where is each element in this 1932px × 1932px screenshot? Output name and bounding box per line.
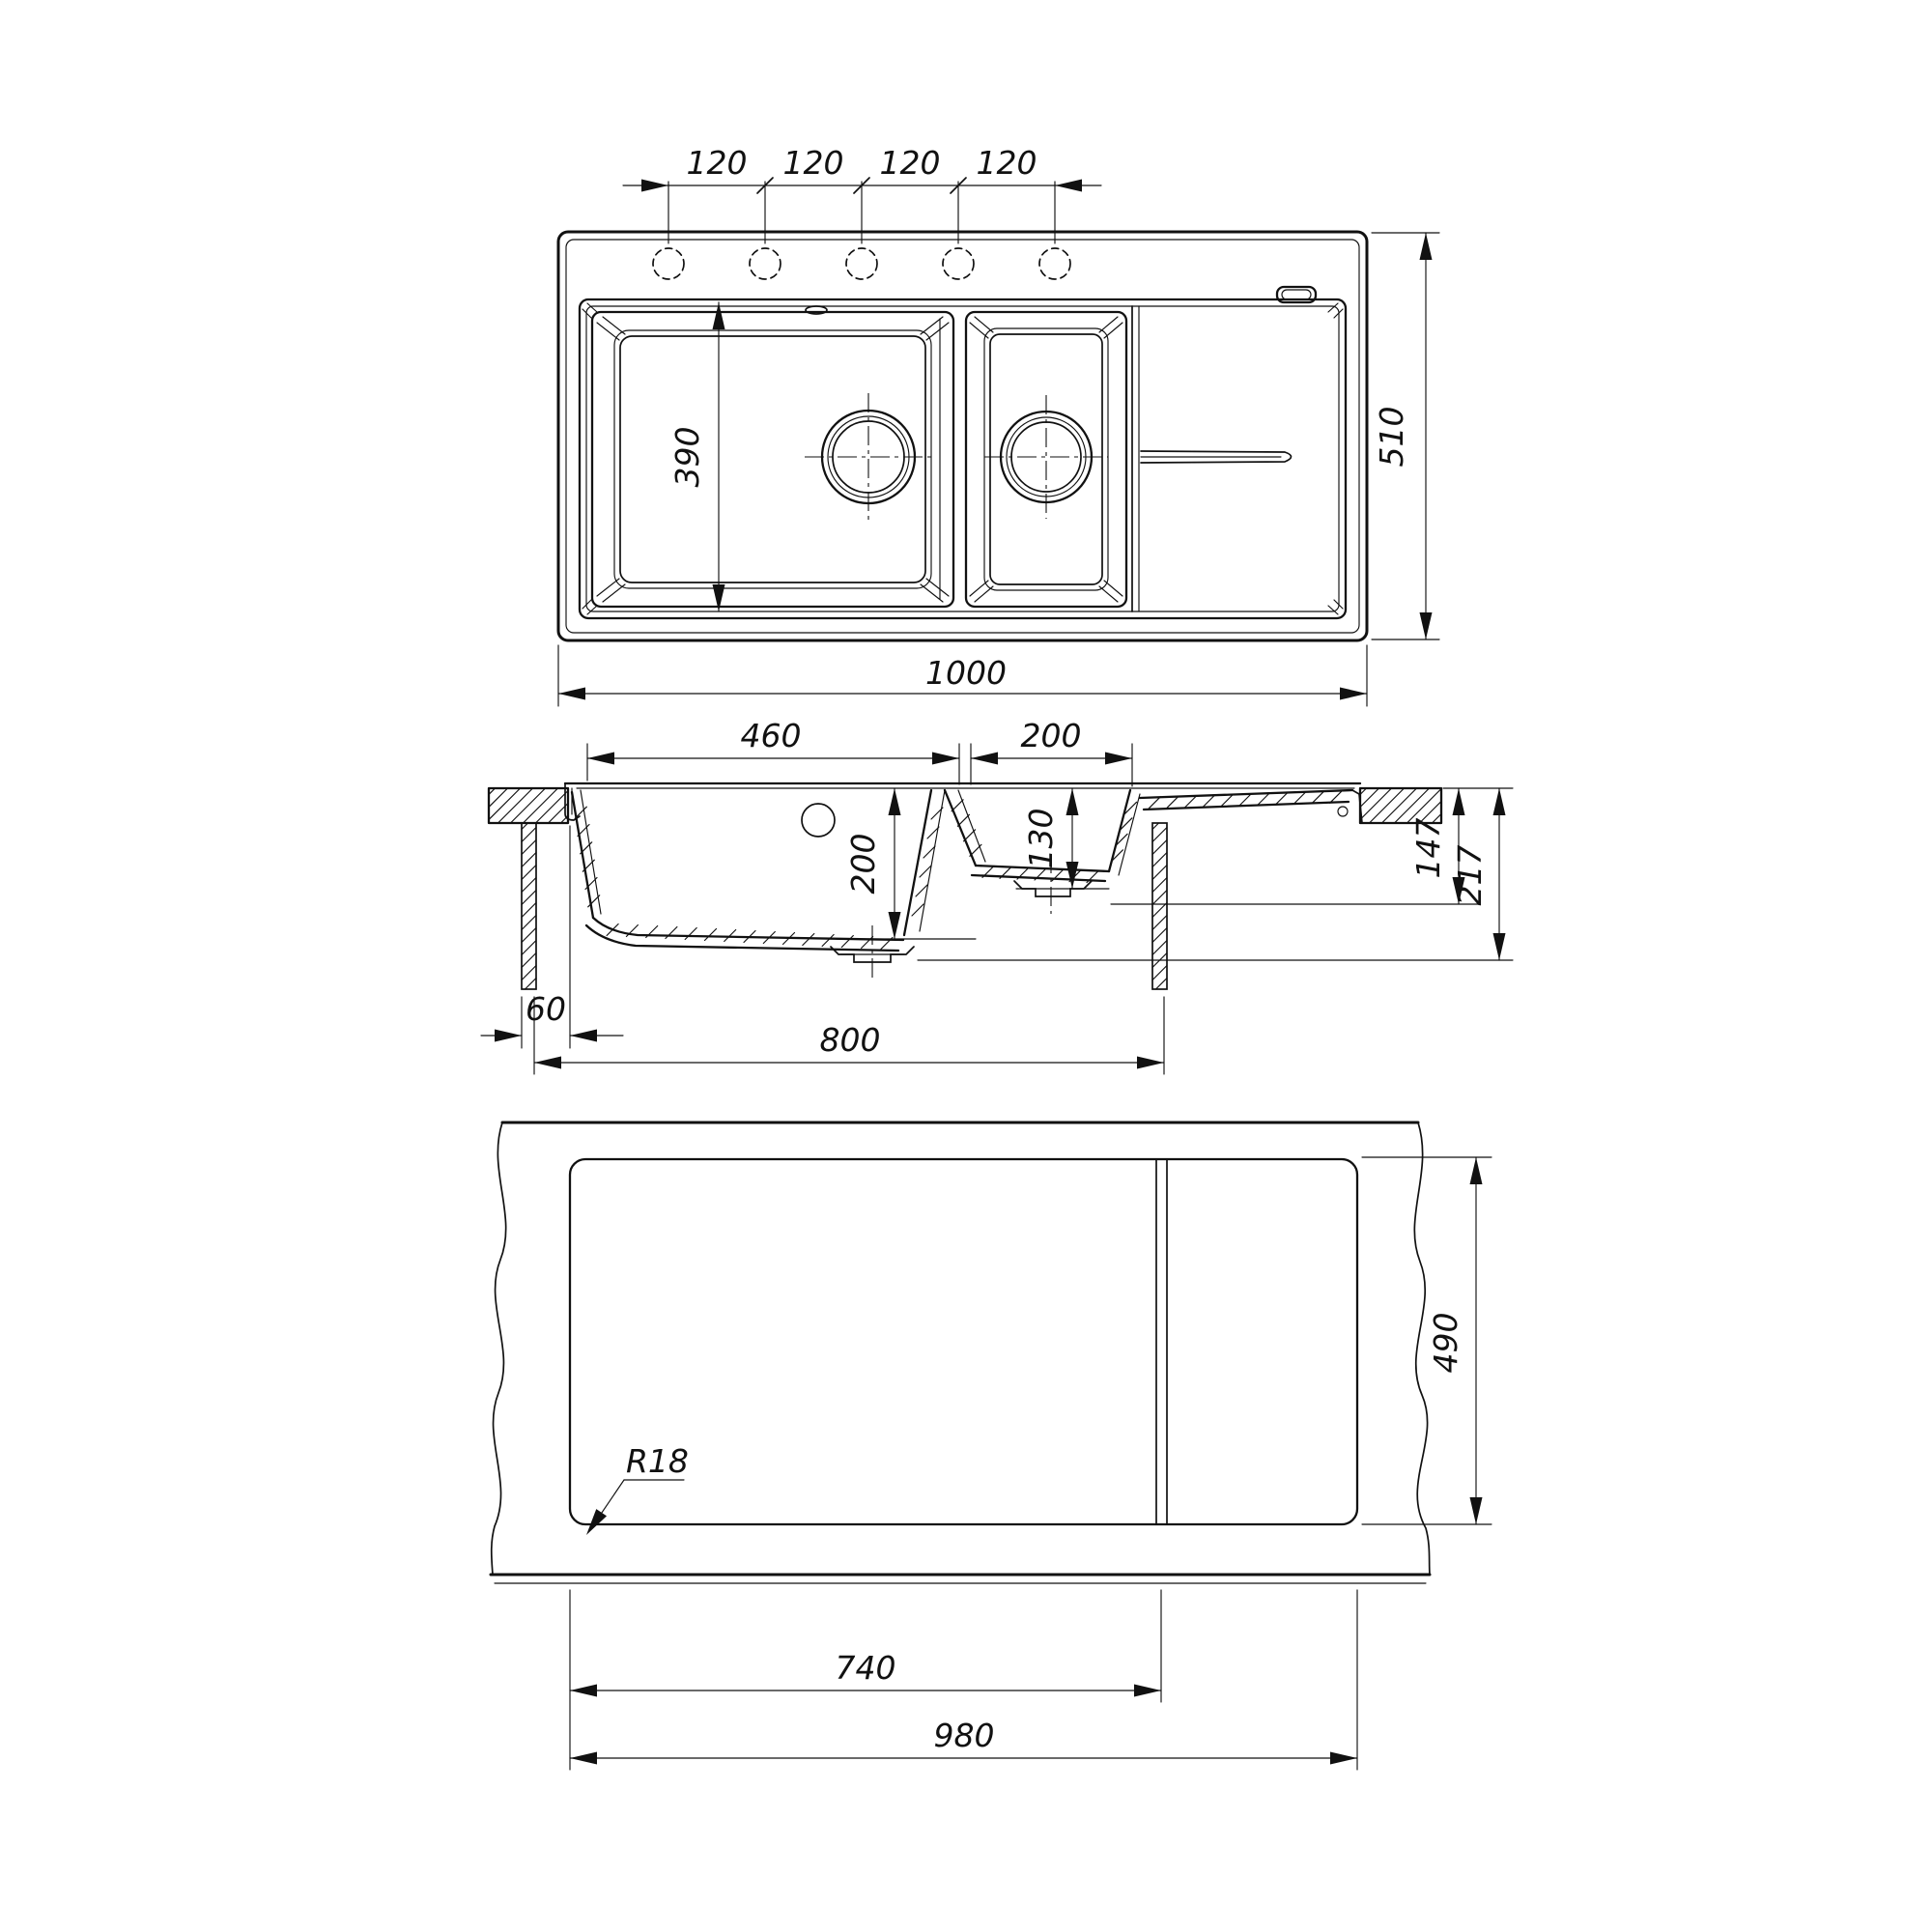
dim-label-cabinet-width: 800 [820,1021,881,1059]
dimension-arrow [932,753,959,765]
hatch-line [522,903,536,918]
hatch-line [522,916,536,930]
divider-wall [904,790,931,935]
small-bowl-corner-bevels [970,317,1122,602]
sink-section-profile [565,783,1362,980]
section-hatch-tick [841,936,853,948]
dimension-arrow [1066,788,1079,815]
small-bowl-right-wall [1109,790,1130,871]
faucet-hole [846,248,877,279]
dim-label-overall-height: 217 [1451,845,1489,906]
faucet-hole [1039,248,1070,279]
dimension-arrow [1105,753,1132,765]
dimension-arrow [1066,862,1079,889]
dimension-arrow [495,1030,522,1042]
small-bowl-right-wall-inner [1119,794,1140,875]
dimension-arrow [558,688,585,700]
dim-label-divider-offset: 740 [836,1649,896,1687]
sink-technical-drawing: 120 120 120 120 1000 510 390 [0,0,1932,1932]
dim-label-front-overhang: 60 [526,990,566,1028]
hatch-line [1152,903,1167,918]
main-bowl-outline [592,312,953,607]
dimension-arrow [534,1057,561,1069]
hatch-line [1152,866,1167,880]
section-hatch-tick [1258,794,1269,806]
main-bowl-left-wall-inner [581,790,601,914]
cutout-depth-dimension: 490 [1362,1157,1492,1524]
faucet-hole [943,248,974,279]
main-drain-outer [822,411,915,503]
dim-label-cutout-width: 980 [934,1717,995,1754]
main-drain [805,393,932,521]
dim-label-cutout-depth: 490 [1427,1313,1464,1374]
main-bowl [592,312,953,607]
overflow-hole-section [802,804,835,837]
dim-label-overall-width: 1000 [925,654,1007,692]
section-hatch-tick [964,830,976,841]
dimension-arrow [889,912,901,939]
section-hatch-tick [1239,794,1251,806]
dimension-arrow [1470,1157,1483,1184]
dim-label-small-bowl-width: 200 [1021,717,1082,754]
hatch-line [522,853,536,867]
section-hatch-tick [970,844,981,856]
hatch-line [1152,941,1167,955]
small-bowl-bevel-edge [984,328,1108,590]
dimension-arrow [1330,1752,1357,1765]
dim-label-hole-spacing-3: 120 [880,144,941,182]
technical-drawing-page: 120 120 120 120 1000 510 390 [0,0,1932,1932]
faucet-hole [750,248,781,279]
dimension-arrow [889,788,901,815]
section-hatch-tick [1204,795,1215,807]
hatch-line [1152,878,1167,893]
section-hatch-tick [822,935,834,947]
dimension-arrow [1420,612,1433,639]
hatch-line [1152,840,1167,855]
hatch-line [1360,788,1392,820]
hatch-line [536,791,569,824]
main-bowl-corner-bevels [597,317,949,602]
overall-width-dimension: 1000 [558,645,1367,706]
section-hatch-tick [952,800,963,811]
hatch-line [522,953,536,968]
small-drain [984,395,1108,519]
section-hatch-tick [1221,795,1233,807]
drainboard-underside [1144,802,1349,810]
dimension-arrow [570,1752,597,1765]
dim-label-bowl-length: 390 [668,427,706,488]
dim-label-corner-radius: R18 [626,1442,689,1480]
hatch-line [1152,828,1167,842]
dim-label-main-bowl-depth: 200 [844,834,882,895]
hatch-line [489,788,521,820]
dimension-arrow [1055,180,1082,192]
dimension-arrow [1340,688,1367,700]
faucet-holes [653,248,1070,279]
hatch-line [1152,966,1167,980]
hatch-line [522,966,536,980]
cutout-width-dimensions: 740 980 [570,1590,1357,1770]
hatch-line [522,891,536,905]
divider-wall-inner [920,790,945,931]
dimension-arrow [570,1030,597,1042]
section-hatch-tick [685,928,696,940]
small-bowl [966,312,1126,607]
faucet-hole [653,248,684,279]
section-view: 460 200 200 130 60 800 147 217 [481,717,1513,1074]
hatch-line [1152,928,1167,943]
section-dimensions: 460 200 200 130 60 800 147 217 [481,717,1513,1074]
hatch-line [526,979,537,990]
dimension-arrow [1453,788,1465,815]
hatch-line [1152,891,1167,905]
hole-spacing-dimension: 120 120 120 120 [623,144,1101,185]
dimension-arrow [1420,233,1433,260]
section-hatch-tick [724,930,736,942]
dimension-arrow [587,753,614,765]
hatch-line [522,840,536,855]
section-hatch-tick [1293,792,1305,804]
main-bowl-bottom-edge [620,336,925,582]
section-hatch-tick [912,904,923,916]
section-hatch-tick [705,929,717,941]
hatch-line [522,941,536,955]
hatch-line [522,878,536,893]
top-view: 120 120 120 120 1000 510 390 [558,144,1439,706]
overflow-window-inner [1282,290,1311,299]
dim-label-hole-spacing-2: 120 [783,144,844,182]
dim-label-overall-depth: 510 [1373,407,1410,468]
dimension-arrow [1134,1685,1161,1697]
drip-groove [1338,807,1348,816]
dimension-arrow [971,753,998,765]
dimension-arrow [1137,1057,1164,1069]
hatch-line [1152,916,1167,930]
overall-depth-dimension: 510 [1372,233,1439,639]
dim-label-small-bowl-depth: 130 [1022,809,1060,869]
dimension-arrow [1493,788,1506,815]
hatch-line [522,866,536,880]
dimension-arrow [1470,1497,1483,1524]
section-hatch-tick [803,934,814,946]
dim-label-height-to-drainboard: 147 [1409,818,1447,879]
dimension-arrow [641,180,668,192]
generated-drawing-primitives [489,178,1506,1765]
dimension-arrow [1493,933,1506,960]
dim-label-hole-spacing-4: 120 [977,144,1037,182]
hatch-line [1152,823,1159,830]
break-line-left [492,1122,506,1575]
section-hatch-tick [1185,796,1197,808]
hatch-line [1152,853,1167,867]
hatch-line [522,928,536,943]
drainboard [1132,306,1292,611]
dim-label-main-bowl-width: 460 [741,717,802,754]
dim-label-hole-spacing-1: 120 [687,144,748,182]
main-bowl-floor [593,918,903,940]
dimension-arrow [570,1685,597,1697]
hatch-line [522,828,536,842]
hatch-line [1156,979,1168,990]
section-hatch-tick [957,814,969,826]
section-hatch-tick [1276,793,1288,805]
main-bowl-bevel-edge [614,330,931,588]
bottom-view: R18 490 740 980 [491,1122,1492,1770]
bowl-length-dimension: 390 [668,302,719,611]
